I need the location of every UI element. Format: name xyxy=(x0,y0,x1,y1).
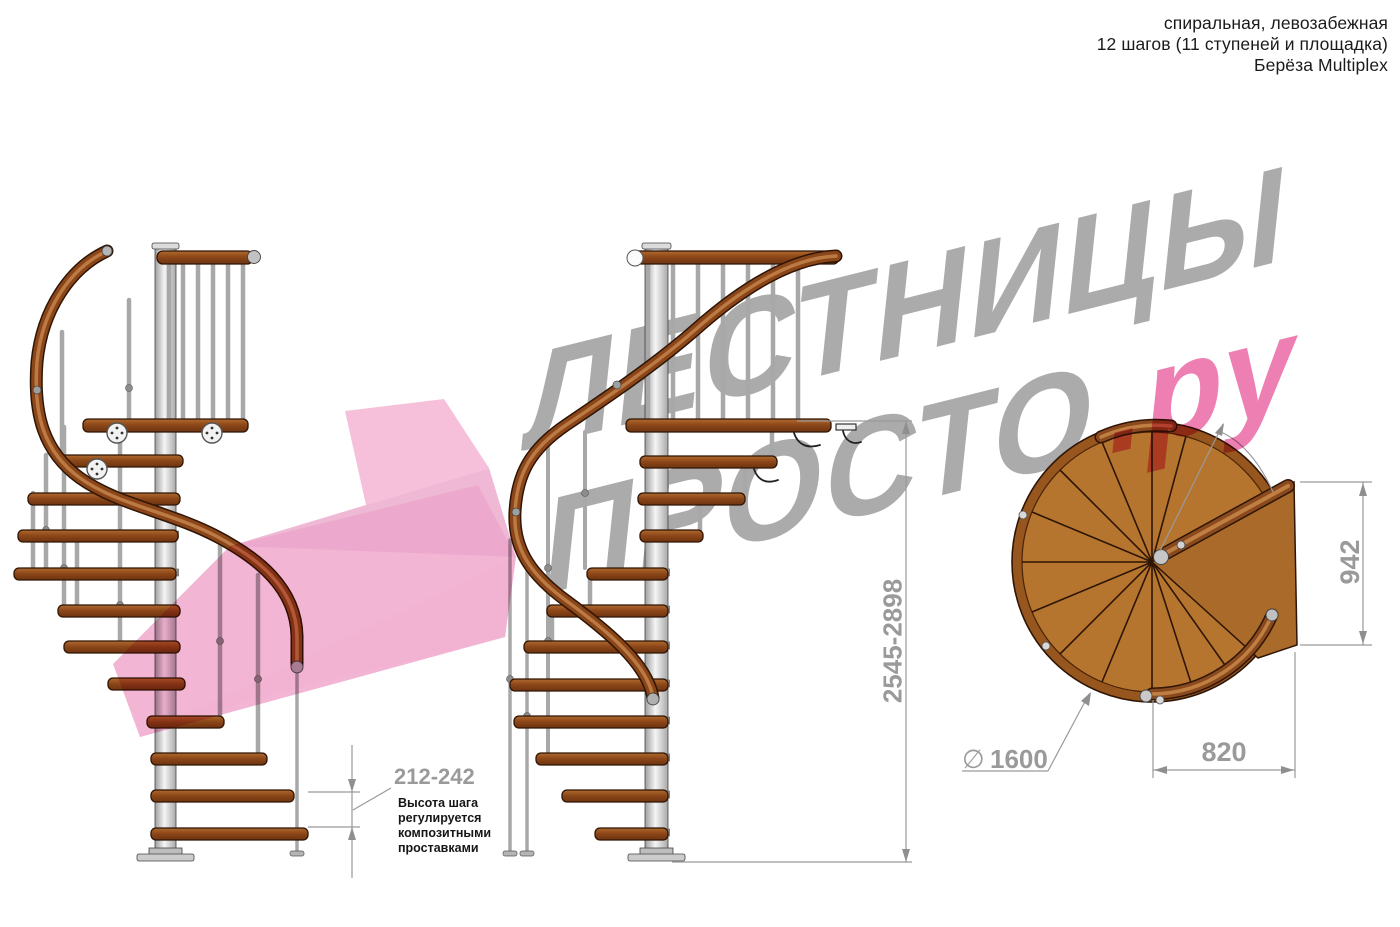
pole-collars xyxy=(644,420,670,836)
arrow-up-left-icon xyxy=(1215,423,1224,436)
step xyxy=(536,753,668,765)
step xyxy=(562,790,668,802)
plan-view xyxy=(1012,422,1297,704)
landing-board xyxy=(83,419,248,432)
stair-disc xyxy=(1022,432,1282,692)
svg-text:регулируется: регулируется xyxy=(398,811,481,825)
arrow-up-icon xyxy=(902,421,910,434)
arrow-right-icon xyxy=(1281,766,1294,774)
svg-text:проставками: проставками xyxy=(398,841,479,855)
balusters xyxy=(510,264,798,852)
pole-cap xyxy=(152,243,179,249)
pole-base-plate xyxy=(628,854,685,861)
rail-end-cap xyxy=(627,250,643,266)
pole-top-cap xyxy=(1154,550,1169,565)
watermark-brand-suffix: .ру xyxy=(1101,291,1305,478)
wall-bracket xyxy=(836,424,856,430)
dimension-diameter xyxy=(962,692,1091,771)
arrow-up-icon xyxy=(1359,483,1367,496)
svg-text:композитными: композитными xyxy=(398,826,491,840)
plan-handrail-arc-top xyxy=(1101,425,1171,437)
step xyxy=(147,716,224,728)
pole-base-plate xyxy=(640,848,673,855)
handrail xyxy=(33,246,303,673)
step xyxy=(524,641,668,653)
balusters xyxy=(33,264,297,852)
mounting-brackets xyxy=(754,431,861,482)
step xyxy=(18,530,178,542)
plan-handrail-arc-bottom xyxy=(1140,609,1278,702)
baluster-joints xyxy=(43,385,262,683)
rim-connectors xyxy=(1019,511,1164,704)
pole-cap xyxy=(642,243,671,249)
step xyxy=(640,530,703,542)
dimension-plan-depth xyxy=(1153,652,1295,778)
arrow-down-icon xyxy=(902,849,910,862)
spec-header: спиральная, левозабежная 12 шагов (11 ст… xyxy=(1097,13,1388,76)
step-height-note: Высота шага регулируется композитными пр… xyxy=(398,796,491,855)
plan-width-value: 942 xyxy=(1335,539,1365,584)
arrow-down-icon xyxy=(1359,631,1367,644)
top-rail xyxy=(630,251,839,264)
middle-elevation-view xyxy=(503,243,861,861)
plan-depth-value: 820 xyxy=(1201,737,1246,767)
watermark-front-layer: .ру xyxy=(0,0,1400,922)
step xyxy=(58,605,180,617)
dimension-rotation-angle xyxy=(1160,423,1273,551)
arrow-down-icon xyxy=(348,779,356,792)
step xyxy=(587,568,668,580)
step xyxy=(640,456,777,468)
dimension-plan-width xyxy=(1300,482,1372,645)
step-height-value: 212-242 xyxy=(394,764,475,789)
pole-base-plate xyxy=(149,848,182,855)
handrail xyxy=(512,256,836,705)
step xyxy=(510,679,668,691)
arrow-left-icon xyxy=(1154,766,1167,774)
staircase-drawing: 212-242 Высота шага регулируется компози… xyxy=(0,0,1400,922)
handrail-collar xyxy=(1177,541,1185,549)
watermark-brand-line1: ЛЕСТНИЦЫ xyxy=(518,143,1295,473)
baluster-foot xyxy=(290,851,304,856)
pole-base-plate xyxy=(137,854,194,861)
step xyxy=(57,455,183,467)
step xyxy=(514,716,668,728)
pole-collars xyxy=(153,420,179,836)
plan-handrail-bar xyxy=(1166,486,1288,553)
spec-type: спиральная, левозабежная xyxy=(1097,13,1388,34)
brand-arrow-icon xyxy=(0,0,1400,922)
diameter-symbol: ∅ xyxy=(962,744,985,774)
watermark-back-layer: ЛЕСТНИЦЫ ПРОСТО xyxy=(0,0,1400,922)
step xyxy=(108,678,185,690)
tread-sector-lines xyxy=(1022,432,1227,692)
flange-plates xyxy=(87,423,222,479)
step xyxy=(14,568,176,580)
svg-text:Высота шага: Высота шага xyxy=(398,796,479,810)
spec-steps: 12 шагов (11 ступеней и площадка) xyxy=(1097,34,1388,55)
treads xyxy=(510,251,839,840)
total-height-value: 2545-2898 xyxy=(878,579,908,703)
left-elevation-view xyxy=(14,243,308,861)
step xyxy=(151,753,267,765)
baluster-joints xyxy=(507,490,589,720)
step xyxy=(547,605,668,617)
step xyxy=(151,828,308,840)
diameter-value: 1600 xyxy=(990,744,1048,774)
step xyxy=(151,790,294,802)
arrow-up-icon xyxy=(348,827,356,840)
step xyxy=(28,493,180,505)
step xyxy=(638,493,745,505)
arrow-up-right-icon xyxy=(1081,692,1091,706)
dimension-total-height xyxy=(672,421,912,862)
landing-board xyxy=(626,419,831,432)
stair-rim xyxy=(1012,422,1292,702)
step xyxy=(595,828,668,840)
center-pole xyxy=(155,246,176,858)
center-pole xyxy=(645,246,668,858)
top-rail xyxy=(157,251,253,264)
landing-platform xyxy=(1152,482,1297,658)
watermark-brand-line2: ПРОСТО xyxy=(537,341,1103,618)
step xyxy=(64,641,180,653)
dimension-step-height xyxy=(308,745,391,878)
treads xyxy=(14,251,308,840)
baluster-feet xyxy=(503,851,534,856)
spec-material: Берёза Multiplex xyxy=(1097,55,1388,76)
rail-end-cap xyxy=(248,251,261,264)
